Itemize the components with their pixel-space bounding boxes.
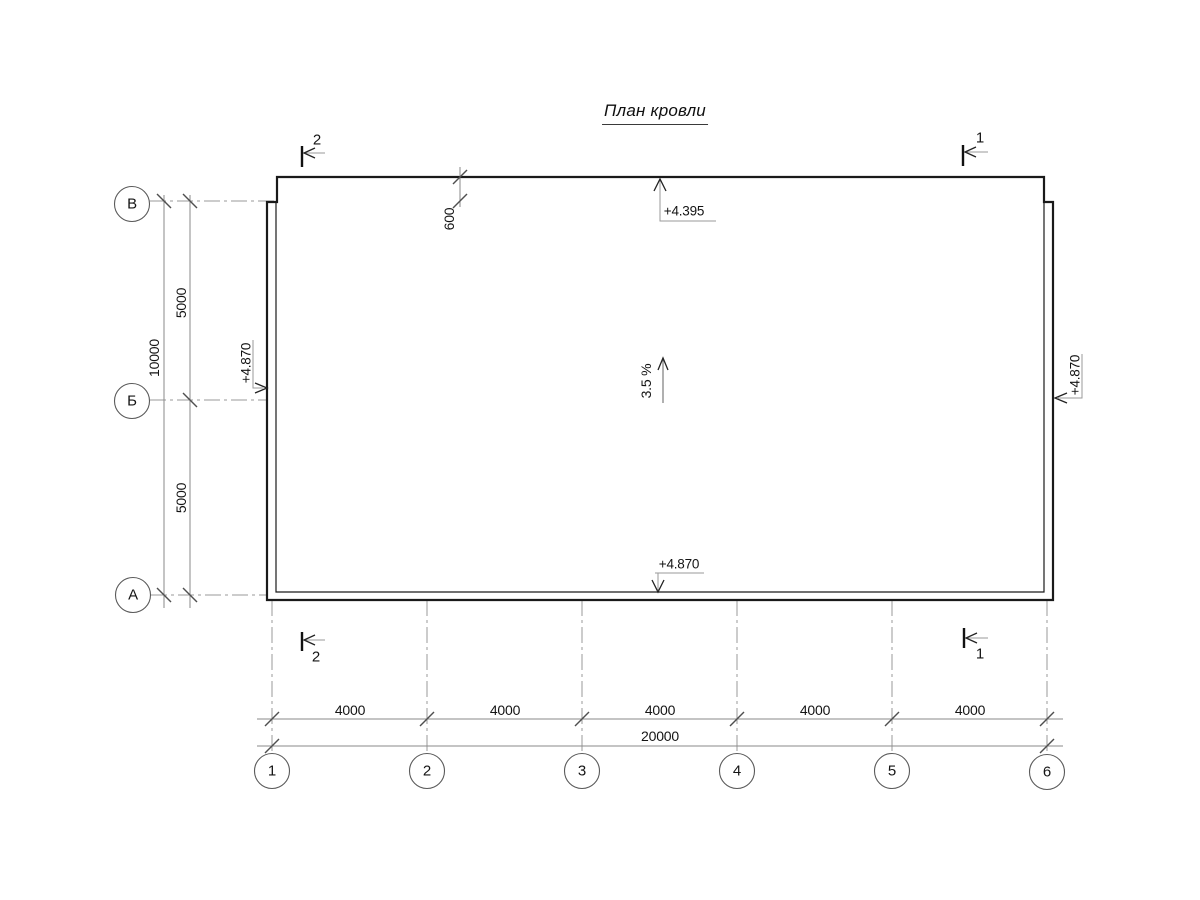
dim-overhang-600: 600: [442, 208, 456, 231]
elevation-mark-bottom: +4.870: [659, 557, 699, 571]
section-mark-1-top: [963, 145, 988, 166]
dim-col-spacing-3: 4000: [645, 703, 675, 717]
col-axis-label-5: 5: [888, 764, 896, 779]
drawing-canvas: [0, 0, 1200, 900]
section-label-1-bottom: 1: [976, 647, 984, 662]
dim-col-spacing-2: 4000: [490, 703, 520, 717]
slope-label: 3.5 %: [639, 364, 653, 399]
elevation-left-leader: [253, 340, 263, 388]
dim-col-spacing-1: 4000: [335, 703, 365, 717]
row-axis-label-b: Б: [127, 394, 137, 409]
col-axis-label-1: 1: [268, 764, 276, 779]
roof-plan-drawing: План кровли В Б А 1 2 3 4 5 6 5000 5000 …: [0, 0, 1200, 900]
col-axis-label-6: 6: [1043, 765, 1051, 780]
row-axis-label-a: А: [128, 588, 138, 603]
elevation-mark-left: +4.870: [239, 343, 253, 383]
drawing-title: План кровли: [602, 101, 708, 125]
dim-row-spacing-1: 5000: [174, 288, 188, 318]
row-axis-label-v: В: [127, 197, 137, 212]
dim-row-total: 10000: [147, 339, 161, 377]
roof-outline: [267, 177, 1053, 600]
dim-col-spacing-5: 4000: [955, 703, 985, 717]
elevation-mark-right: +4.870: [1068, 355, 1082, 395]
section-label-2-top: 2: [313, 133, 321, 148]
section-label-2-bottom: 2: [312, 650, 320, 665]
section-label-1-top: 1: [976, 131, 984, 146]
dim-col-total: 20000: [641, 729, 679, 743]
dim-row-spacing-2: 5000: [174, 483, 188, 513]
col-axis-label-3: 3: [578, 764, 586, 779]
dim-col-spacing-4: 4000: [800, 703, 830, 717]
col-axis-label-4: 4: [733, 764, 741, 779]
elevation-mark-top: +4.395: [664, 204, 704, 218]
col-axis-label-2: 2: [423, 764, 431, 779]
section-mark-2-top: [302, 146, 325, 167]
